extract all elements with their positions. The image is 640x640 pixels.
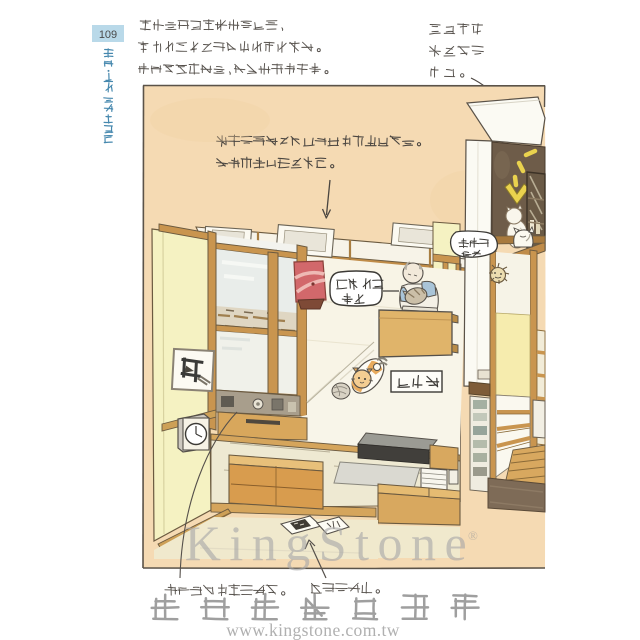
- svg-text:109: 109: [99, 29, 117, 41]
- svg-text:®: ®: [468, 528, 478, 543]
- svg-text:www.kingstone.com.tw: www.kingstone.com.tw: [226, 620, 400, 640]
- svg-text:KingStone: KingStone: [185, 515, 475, 571]
